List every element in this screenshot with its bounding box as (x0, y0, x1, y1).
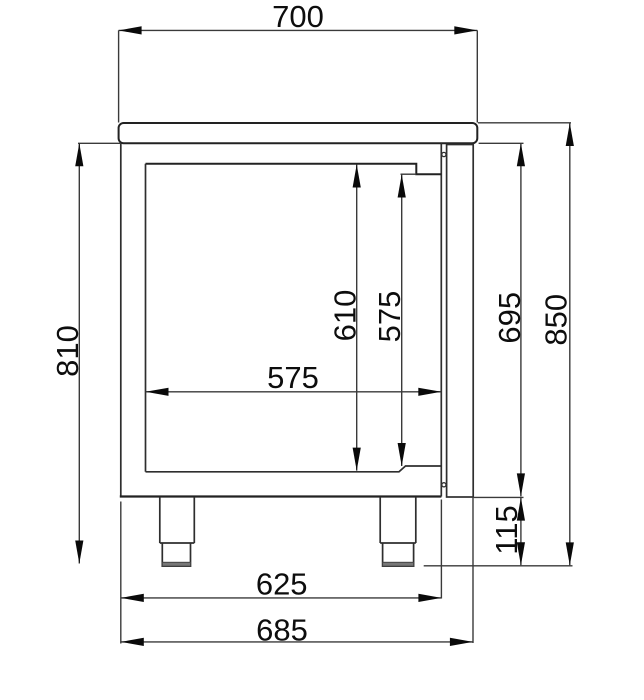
svg-text:850: 850 (539, 294, 574, 346)
svg-text:115: 115 (489, 505, 524, 554)
svg-text:575: 575 (372, 291, 407, 343)
svg-text:625: 625 (256, 566, 308, 601)
svg-text:610: 610 (328, 290, 363, 342)
svg-text:700: 700 (272, 0, 324, 34)
svg-text:810: 810 (50, 325, 85, 377)
svg-text:685: 685 (256, 612, 308, 647)
svg-text:575: 575 (267, 360, 319, 395)
svg-text:695: 695 (492, 292, 527, 344)
